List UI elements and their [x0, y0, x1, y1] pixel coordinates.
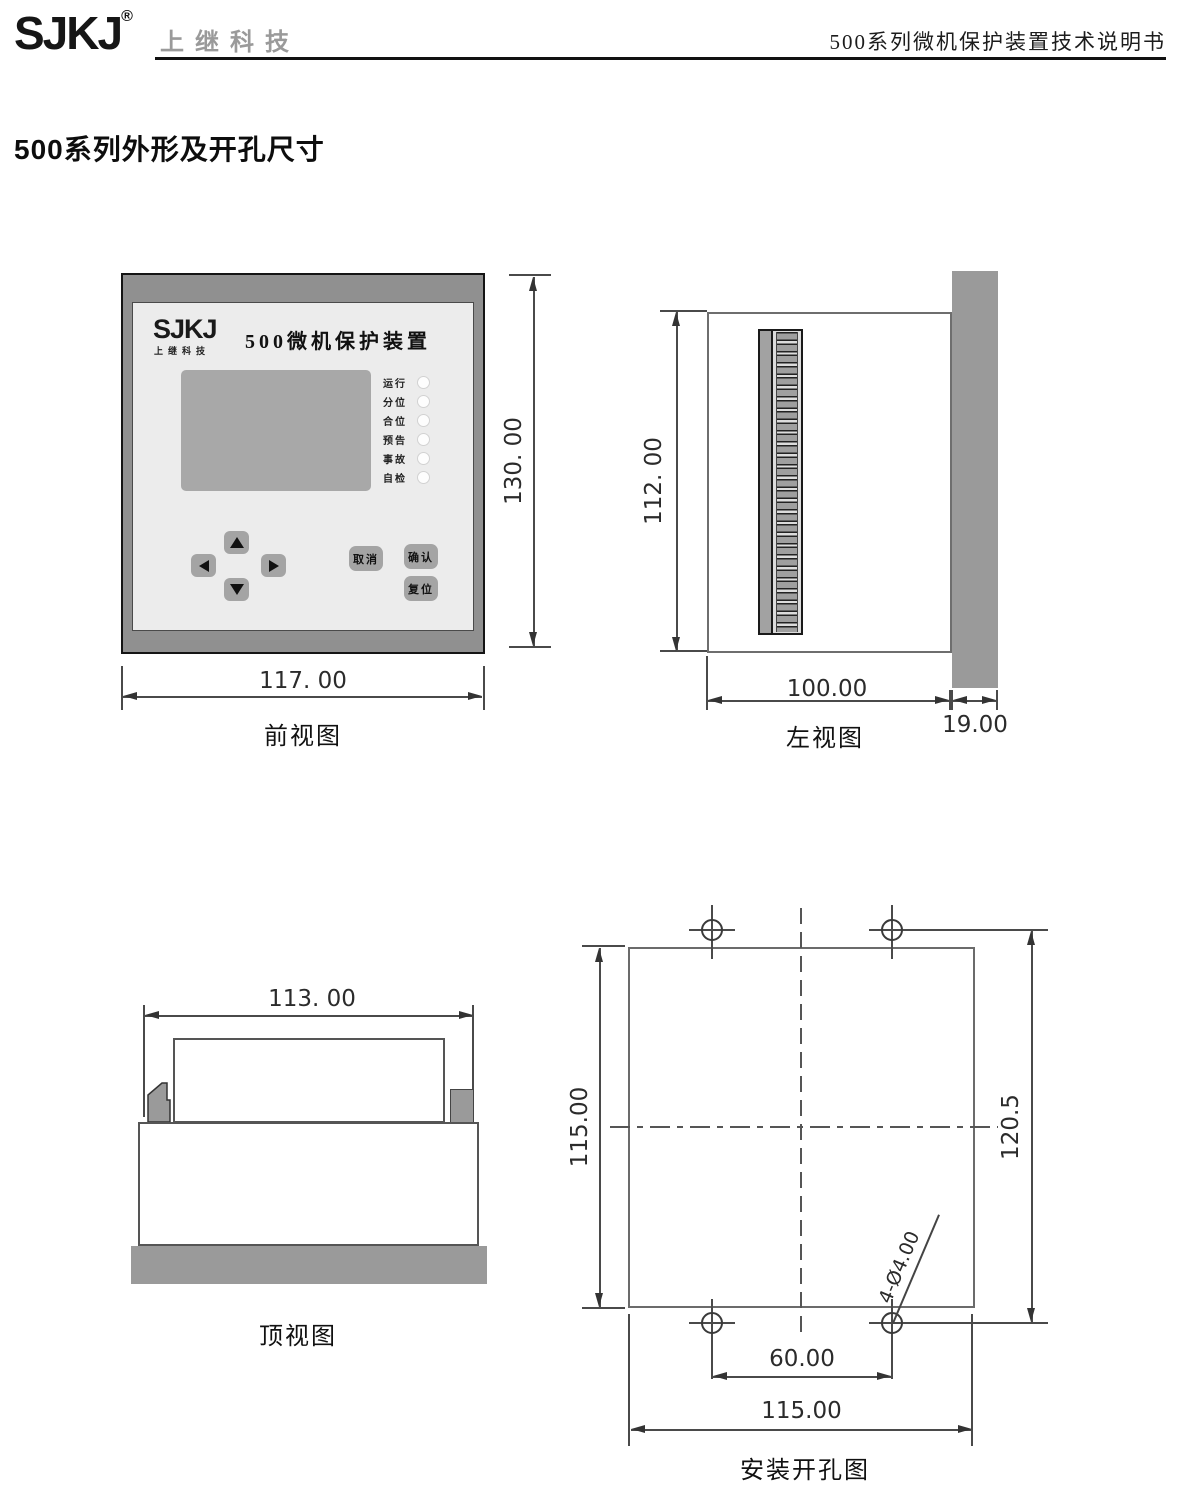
hole-crosshair [711, 1299, 713, 1379]
dim-arrow [1027, 1308, 1035, 1322]
top-view-body [138, 1122, 479, 1246]
dim-arrow [708, 696, 722, 704]
dim-arrow [595, 1293, 603, 1307]
device-title: 500微机保护装置 [245, 325, 431, 354]
led-indicator [417, 452, 430, 465]
top-width-dim: 113. 00 [162, 986, 462, 1012]
extension-tick [509, 646, 551, 648]
key-down-button [224, 578, 249, 601]
left-depth-dim: 100.00 [727, 676, 927, 702]
mounting-hole [701, 919, 723, 941]
led-label: 预告 [383, 432, 407, 447]
dimension-line [1031, 931, 1033, 1322]
front-view-device-panel: SJKJ 上继科技 500微机保护装置 运行 分位 合位 预告 事故 自检 [132, 302, 474, 631]
reset-button: 复位 [404, 576, 438, 601]
key-left-button [191, 554, 216, 577]
right-arrow-icon [269, 560, 279, 572]
key-right-button [261, 554, 286, 577]
dimension-line [676, 312, 678, 651]
dim-arrow [459, 1011, 473, 1019]
dim-arrow [631, 1425, 645, 1433]
led-label: 分位 [383, 394, 407, 409]
top-view-rear-box [173, 1038, 445, 1123]
manual-page: SJKJ® 上继科技 500系列微机保护装置技术说明书 500系列外形及开孔尺寸… [0, 0, 1180, 1495]
top-view-caption: 顶视图 [208, 1316, 388, 1351]
led-row: 合位 [383, 413, 430, 427]
led-row: 预告 [383, 432, 430, 446]
bezel-thickness-dim: 19.00 [925, 712, 1025, 738]
extension-line [996, 690, 998, 710]
front-width-dim: 117. 00 [153, 668, 453, 694]
dim-arrow [468, 692, 482, 700]
hole-crosshair [891, 1299, 893, 1379]
extension-line [121, 666, 123, 710]
document-title: 500系列微机保护装置技术说明书 [830, 26, 1167, 56]
led-label: 合位 [383, 413, 407, 428]
left-view-caption: 左视图 [745, 718, 905, 753]
terminal-block-slots [776, 332, 798, 632]
front-height-dim: 130. 00 [500, 369, 528, 553]
device-logo: SJKJ [153, 316, 217, 343]
extension-line [483, 666, 485, 710]
brand-logo-text: SJKJ [14, 7, 121, 59]
extension-tick [660, 650, 707, 652]
dimension-line [713, 1376, 891, 1378]
led-indicator [417, 376, 430, 389]
dim-arrow [982, 696, 996, 704]
down-arrow-icon [230, 584, 244, 595]
dim-arrow [529, 632, 537, 646]
cutout-view-caption: 安装开孔图 [695, 1450, 915, 1485]
brand-logo-subtext: 上继科技 [160, 22, 300, 57]
dim-arrow [877, 1372, 891, 1380]
dim-arrow [145, 1011, 159, 1019]
dim-arrow [958, 1425, 972, 1433]
extension-tick [509, 274, 551, 276]
dim-arrow [595, 948, 603, 962]
left-view-body [707, 312, 952, 653]
extension-line [143, 1005, 145, 1117]
mounting-hole [881, 919, 903, 941]
key-up-button [224, 531, 249, 554]
dimension-line [599, 948, 601, 1307]
header-rule [155, 57, 1166, 60]
confirm-button: 确认 [404, 544, 438, 569]
center-line-horizontal [610, 1126, 998, 1128]
dimension-line [123, 696, 482, 698]
dim-arrow [529, 277, 537, 291]
dimension-line [631, 1429, 972, 1431]
left-view-front-bezel [952, 271, 998, 688]
led-indicator [417, 471, 430, 484]
left-arrow-icon [199, 560, 209, 572]
extension-tick [582, 945, 625, 947]
led-indicator [417, 414, 430, 427]
extension-line [628, 1314, 630, 1446]
led-row: 事故 [383, 451, 430, 465]
dim-arrow [1027, 931, 1035, 945]
hole-spacing-h-dim: 60.00 [723, 1346, 881, 1372]
cancel-button: 取消 [349, 546, 383, 571]
terminal-block [758, 329, 803, 635]
led-label: 事故 [383, 451, 407, 466]
center-line-vertical [800, 908, 802, 1338]
registered-mark-icon: ® [121, 8, 133, 25]
terminal-block-bar [760, 331, 773, 633]
dim-arrow [935, 696, 949, 704]
dimension-line [145, 1015, 473, 1017]
top-view-left-clip [146, 1082, 171, 1123]
section-heading: 500系列外形及开孔尺寸 [14, 128, 325, 168]
mounting-hole [701, 1312, 723, 1334]
hole-spacing-v-dim: 120.5 [997, 1035, 1025, 1219]
cutout-width-dim: 115.00 [700, 1398, 903, 1424]
up-arrow-icon [230, 537, 244, 548]
dim-arrow [123, 692, 137, 700]
extension-tick [660, 310, 707, 312]
dim-arrow [672, 312, 680, 326]
dim-arrow [713, 1372, 727, 1380]
led-row: 运行 [383, 375, 430, 389]
led-label: 自检 [383, 470, 407, 485]
extension-tick [582, 1307, 625, 1309]
led-label: 运行 [383, 375, 407, 390]
led-indicator [417, 395, 430, 408]
top-view-front-bezel [131, 1246, 487, 1284]
led-row: 自检 [383, 470, 430, 484]
dim-arrow [953, 696, 967, 704]
dimension-line [533, 277, 535, 646]
dim-arrow [672, 637, 680, 651]
led-indicator [417, 433, 430, 446]
left-height-dim: 112. 00 [640, 389, 668, 573]
led-row: 分位 [383, 394, 430, 408]
cutout-height-dim: 115.00 [566, 1035, 594, 1219]
brand-logo: SJKJ® [14, 8, 133, 56]
front-view-caption: 前视图 [153, 716, 453, 751]
device-logo-subtext: 上继科技 [154, 344, 210, 357]
lcd-screen [181, 370, 371, 491]
top-view-right-clip [450, 1089, 474, 1123]
